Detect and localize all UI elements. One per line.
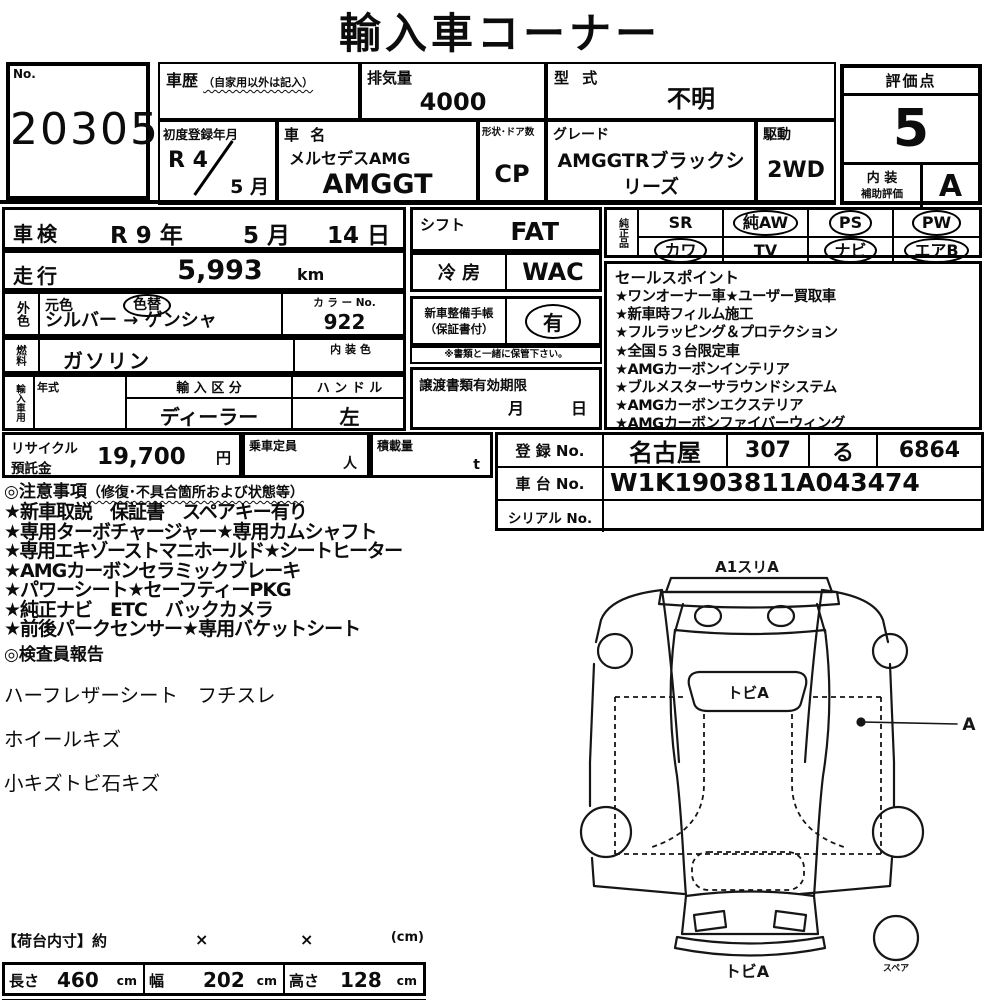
- transfer-docs-cell: 譲渡書類有効期限 月 日: [410, 367, 602, 430]
- exterior-color-value: シルバー → ゲンシャ: [45, 306, 217, 332]
- interior-color-label: 内 装 色: [295, 340, 406, 357]
- oem-item-navi: ナビ: [824, 238, 876, 264]
- transfer-docs-day: 日: [571, 395, 587, 419]
- service-book-cell: 新車整備手帳 （保証書付） 有: [410, 296, 602, 346]
- divider-line: [0, 200, 836, 204]
- import-kubun-cell: 輸 入 区 分 ディーラー: [127, 377, 293, 428]
- rating-score: 5: [844, 96, 978, 162]
- oem-item-ps: PS: [829, 210, 872, 236]
- history-cell: 車歴 （自家用以外は記入）: [158, 62, 360, 120]
- first-registration-month: 5 月: [230, 172, 269, 199]
- inspector-report-item: 小キズトビ石キズ: [4, 767, 484, 796]
- handle-cell: ハ ン ド ル 左: [293, 377, 406, 428]
- lot-number-value: 20305: [10, 104, 146, 155]
- cargo-width-label: 幅: [149, 970, 164, 991]
- recycle-deposit-value: 19,700: [97, 444, 186, 470]
- oem-item-jun-aw: 純AW: [733, 210, 798, 236]
- caution-item: ★前後パークセンサー★専用バケットシート: [4, 620, 494, 640]
- cargo-times1: ×: [195, 930, 208, 949]
- exterior-color-label: 外色: [5, 294, 40, 334]
- mileage-row: 走行 5,993 km: [2, 250, 406, 291]
- diagram-top-label: A1スリA: [715, 558, 779, 576]
- color-no-value: 922: [283, 310, 406, 334]
- inspector-report-item: ホイールキズ: [4, 723, 484, 752]
- cargo-height-unit: cm: [397, 973, 417, 988]
- serial-no-value: [604, 501, 981, 532]
- cargo-width-value: 202: [203, 968, 245, 992]
- import-kubun-value: ディーラー: [127, 399, 291, 430]
- import-label: 輸入車用: [5, 377, 35, 428]
- cargo-times2: ×: [300, 930, 313, 949]
- sales-point-item: ★フルラッピング＆プロテクション: [615, 324, 971, 342]
- cargo-title-row: 【荷台内寸】約 × × (cm): [0, 930, 428, 954]
- cargo-height-label: 高さ: [289, 970, 319, 991]
- registration-kana: る: [810, 435, 878, 466]
- cargo-length-value: 460: [57, 968, 99, 992]
- oem-parts-label: 純正品: [607, 210, 639, 255]
- cargo-dimensions-row: 長さ 460 cm 幅 202 cm 高さ 128 cm: [2, 962, 426, 996]
- caution-item: ★パワーシート★セーフティーPKG: [4, 581, 494, 601]
- shaken-row: 車検 R 9 年 5 月 14 日: [2, 207, 406, 250]
- grade-label: グレード: [553, 124, 609, 144]
- import-kubun-label: 輸 入 区 分: [127, 377, 291, 399]
- oem-item-tv: TV: [746, 240, 785, 262]
- chassis-no-value: W1K1903811A043474: [604, 468, 981, 499]
- cargo-title: 【荷台内寸】約: [2, 930, 107, 951]
- cautions-title: ◎注意事項（修復･不具合箇所および状態等）: [4, 477, 494, 502]
- car-model: AMGGT: [279, 169, 476, 200]
- first-registration-cell: 初度登録年月 R 4 5 月: [158, 120, 277, 205]
- interior-rating-label: 内 装 補助評価: [844, 165, 923, 207]
- diagram-windshield-label: トビA: [727, 684, 769, 702]
- displacement-cell: 排気量 4000: [360, 62, 546, 120]
- sales-point-item: ★AMGカーボンインテリア: [615, 361, 971, 379]
- oem-parts-table: 純正品 SR 純AW PS PW カワ TV ナビ エアB: [604, 207, 982, 258]
- model-code-value: 不明: [548, 79, 834, 114]
- history-note: （自家用以外は記入）: [203, 76, 313, 89]
- recycle-deposit-unit: 円: [216, 447, 231, 468]
- load-capacity-label: 積載量: [377, 437, 413, 454]
- registration-area: 名古屋: [604, 435, 728, 466]
- auction-sheet: 輸入車コーナー No. 20305 車歴 （自家用以外は記入） 排気量 4000…: [0, 0, 1000, 1000]
- mileage-unit: km: [297, 265, 324, 284]
- oem-item-sr: SR: [661, 212, 701, 234]
- rating-box: 評価点 5 内 装 補助評価 A: [840, 64, 982, 205]
- load-capacity-unit: t: [473, 457, 480, 473]
- sales-point-item: ★ワンオーナー車★ユーザー買取車: [615, 288, 971, 306]
- inspector-report-section: ◎検査員報告 ハーフレザーシート フチスレ ホイールキズ 小キズトビ石キズ: [4, 640, 484, 796]
- exterior-color-row: 外色 元色 色替 シルバー → ゲンシャ カ ラ ー No. 922: [2, 291, 406, 337]
- sales-points-box: セールスポイント ★ワンオーナー車★ユーザー買取車 ★新車時フィルム施工 ★フル…: [604, 261, 982, 430]
- car-damage-diagram: A1スリA トビA A トビA スペア: [565, 556, 1000, 1000]
- shift-cell: シフト FAT: [410, 207, 602, 252]
- body-doors-value: CP: [480, 160, 544, 188]
- registration-table: 登 録 No. 名古屋 307 る 6864 車 台 No. W1K190381…: [495, 432, 984, 531]
- handle-value: 左: [293, 399, 406, 430]
- cargo-length-label: 長さ: [9, 970, 39, 991]
- page-title: 輸入車コーナー: [0, 0, 1000, 61]
- aircon-cell: 冷 房 WAC: [410, 252, 602, 292]
- drive-label: 駆動: [763, 124, 791, 144]
- recycle-deposit-cell: リサイクル 預託金 19,700 円: [2, 432, 242, 478]
- shift-label: シフト: [420, 214, 465, 235]
- lot-number-label: No.: [13, 67, 36, 81]
- car-name-label: 車 名: [284, 124, 328, 145]
- shift-value: FAT: [510, 217, 559, 246]
- sales-point-item: ★全国５３台限定車: [615, 343, 971, 361]
- shaken-year: R 9 年: [110, 216, 183, 250]
- first-registration-year: R 4: [168, 148, 208, 173]
- mileage-label: 走行: [13, 260, 61, 289]
- passenger-capacity-label: 乗車定員: [249, 437, 297, 454]
- diagram-side-label: A: [962, 715, 976, 735]
- fuel-label: 燃料: [5, 340, 40, 371]
- aircon-label: 冷 房: [413, 255, 507, 289]
- passenger-capacity-unit: 人: [343, 453, 357, 473]
- first-registration-label: 初度登録年月: [163, 124, 238, 143]
- shaken-label: 車検: [13, 218, 61, 247]
- mileage-value: 5,993: [155, 255, 285, 286]
- transfer-docs-label: 譲渡書類有効期限: [419, 374, 527, 394]
- sales-point-item: ★新車時フィルム施工: [615, 306, 971, 324]
- load-capacity-cell: 積載量 t: [370, 432, 493, 478]
- rating-label: 評価点: [844, 68, 978, 96]
- oem-item-pw: PW: [912, 210, 961, 236]
- service-book-value: 有: [525, 304, 581, 339]
- service-book-label: 新車整備手帳 （保証書付）: [413, 299, 507, 343]
- grade-cell: グレード AMGGTRブラックシリーズ: [546, 120, 756, 205]
- shaken-month: 5 月: [243, 216, 290, 250]
- inspector-report-item: ハーフレザーシート フチスレ: [4, 679, 484, 708]
- sales-point-item: ★ブルメスターサラウンドシステム: [615, 379, 971, 397]
- body-doors-label: 形状･ドア数: [482, 124, 534, 138]
- drive-cell: 駆動 2WD: [756, 120, 836, 205]
- transfer-docs-month: 月: [508, 395, 524, 419]
- handle-label: ハ ン ド ル: [293, 377, 406, 399]
- sales-point-item: ★AMGカーボンファイバーウィング: [615, 415, 971, 433]
- registration-no-label: 登 録 No.: [498, 435, 604, 466]
- sales-point-item: ★AMGカーボンエクステリア: [615, 397, 971, 415]
- registration-class: 307: [728, 435, 810, 466]
- cargo-length-unit: cm: [117, 973, 137, 988]
- aircon-value: WAC: [507, 255, 599, 289]
- registration-number: 6864: [878, 435, 981, 466]
- model-year-cell: 年式: [33, 377, 127, 428]
- oem-item-kawa: カワ: [654, 238, 706, 264]
- caution-item: ★専用エキゾーストマニホールド★シートヒーター: [4, 542, 494, 562]
- sales-points-title: セールスポイント: [615, 266, 971, 288]
- fuel-row: 燃料 ガソリン 内 装 色: [2, 337, 406, 374]
- serial-no-label: シリアル No.: [498, 501, 604, 532]
- chassis-no-label: 車 台 No.: [498, 468, 604, 499]
- car-maker: メルセデスAMG: [289, 145, 410, 169]
- service-book-note: ※書類と一緒に保管下さい。: [410, 346, 602, 364]
- color-no-cell: カ ラ ー No. 922: [281, 294, 406, 334]
- cargo-height-value: 128: [340, 968, 382, 992]
- recycle-deposit-label: リサイクル 預託金: [11, 437, 78, 477]
- body-doors-cell: 形状･ドア数 CP: [478, 120, 546, 205]
- caution-item: ★新車取説 保証書 スペアキー有り: [4, 503, 494, 523]
- cargo-width-unit: cm: [257, 973, 277, 988]
- interior-rating-score: A: [923, 165, 978, 207]
- import-row: 輸入車用 年式 輸 入 区 分 ディーラー ハ ン ド ル 左: [2, 374, 406, 431]
- drive-value: 2WD: [758, 158, 834, 183]
- color-no-label: カ ラ ー No.: [283, 294, 406, 310]
- inspector-report-title: ◎検査員報告: [4, 640, 484, 665]
- history-label: 車歴: [166, 71, 198, 90]
- lot-number-box: No. 20305: [6, 62, 150, 200]
- shaken-day: 14 日: [327, 216, 390, 250]
- passenger-capacity-cell: 乗車定員 人: [242, 432, 370, 478]
- fuel-value: ガソリン: [63, 345, 151, 374]
- displacement-value: 4000: [362, 88, 544, 116]
- cautions-section: ◎注意事項（修復･不具合箇所および状態等） ★新車取説 保証書 スペアキー有り …: [4, 477, 494, 640]
- model-code-cell: 型 式 不明: [546, 62, 836, 120]
- car-name-cell: 車 名 メルセデスAMG AMGGT: [277, 120, 478, 205]
- diagram-rear-label: トビA: [725, 962, 770, 981]
- model-year-label: 年式: [37, 379, 59, 395]
- displacement-label: 排気量: [367, 67, 412, 88]
- cargo-unit-note: (cm): [391, 930, 424, 945]
- grade-value: AMGGTRブラックシリーズ: [548, 148, 754, 200]
- interior-color-cell: 内 装 色: [293, 340, 406, 371]
- oem-item-airb: エアB: [904, 238, 968, 264]
- diagram-spare-label: スペア: [883, 963, 909, 974]
